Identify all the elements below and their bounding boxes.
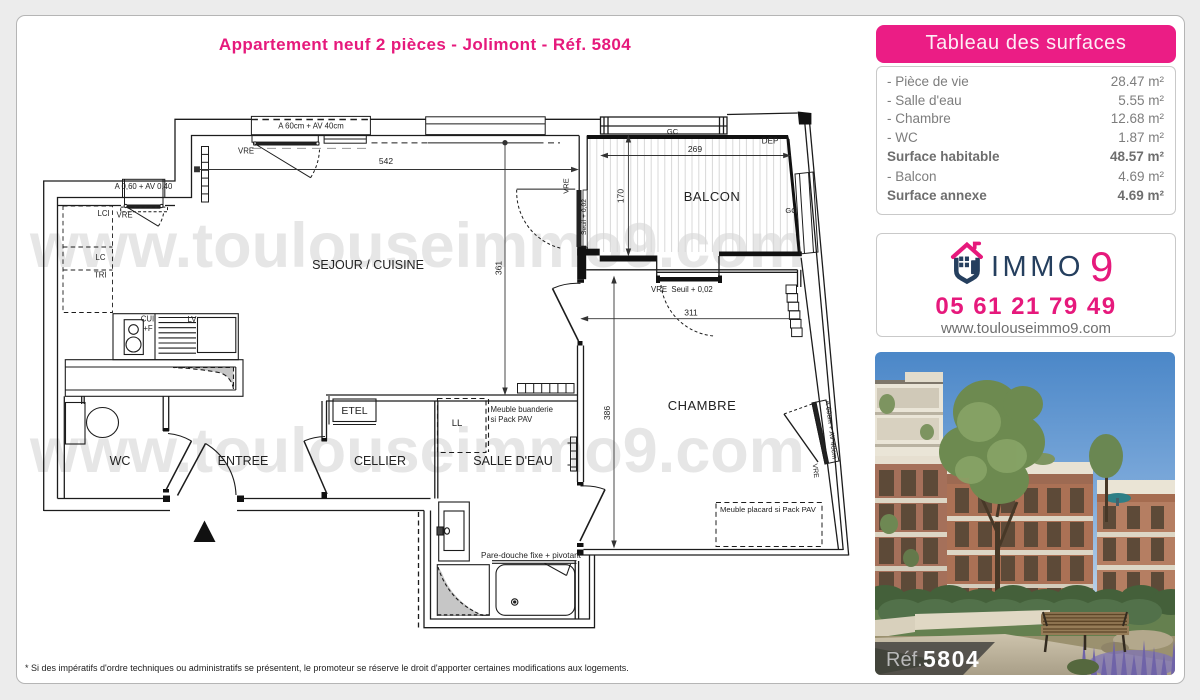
svg-text:LL: LL (452, 418, 463, 429)
svg-text:386: 386 (602, 406, 612, 420)
svg-text:LCI: LCI (98, 209, 110, 218)
svg-text:269: 269 (688, 144, 702, 154)
svg-text:170: 170 (616, 189, 626, 203)
svg-text:Meuble placard si Pack PAV: Meuble placard si Pack PAV (720, 505, 817, 514)
svg-text:542: 542 (379, 156, 393, 166)
svg-text:WC: WC (110, 454, 131, 468)
svg-text:VRE: VRE (238, 147, 254, 156)
svg-text:ENTREE: ENTREE (218, 454, 269, 468)
svg-text:Pare-douche fixe + pivotant: Pare-douche fixe + pivotant (481, 551, 582, 560)
svg-text:CELLIER: CELLIER (354, 454, 406, 468)
svg-text:VRE Seuil + 0,02: VRE Seuil + 0,02 (651, 285, 713, 294)
svg-text:311: 311 (684, 308, 698, 318)
svg-text:Réf.: Réf. (886, 649, 923, 671)
svg-text:361: 361 (494, 261, 504, 275)
svg-text:SEJOUR / CUISINE: SEJOUR / CUISINE (312, 258, 424, 272)
svg-text:9: 9 (1090, 243, 1113, 290)
svg-text:GC: GC (785, 206, 797, 215)
svg-text:CHAMBRE: CHAMBRE (668, 398, 737, 413)
svg-text:LV: LV (188, 315, 198, 324)
svg-text:SALLE D'EAU: SALLE D'EAU (473, 454, 553, 468)
svg-text:GC: GC (667, 127, 679, 136)
svg-text:A 60cm + AV 40cm: A 60cm + AV 40cm (278, 122, 344, 131)
svg-text:5804: 5804 (923, 646, 980, 672)
svg-text:IMMO: IMMO (991, 251, 1084, 283)
svg-text:VRE: VRE (562, 178, 571, 193)
svg-text:www.toulouseimmo9.com: www.toulouseimmo9.com (29, 416, 805, 486)
svg-text:CUI: CUI (141, 315, 154, 324)
svg-text:+F: +F (143, 324, 153, 333)
svg-text:VRE: VRE (811, 463, 820, 478)
svg-text:LC: LC (96, 253, 106, 262)
svg-text:ETEL: ETEL (341, 405, 367, 417)
svg-text:DEP: DEP (762, 137, 779, 146)
svg-text:BALCON: BALCON (684, 189, 740, 204)
svg-text:TRI: TRI (94, 271, 107, 280)
svg-text:Meuble buanderie: Meuble buanderie (491, 405, 553, 414)
svg-text:A 0,60 + AV 0,40: A 0,60 + AV 0,40 (115, 182, 173, 191)
svg-text:si Pack PAV: si Pack PAV (491, 415, 534, 424)
svg-text:Seuil + 0,02: Seuil + 0,02 (581, 199, 588, 235)
svg-text:VRE: VRE (117, 211, 133, 220)
